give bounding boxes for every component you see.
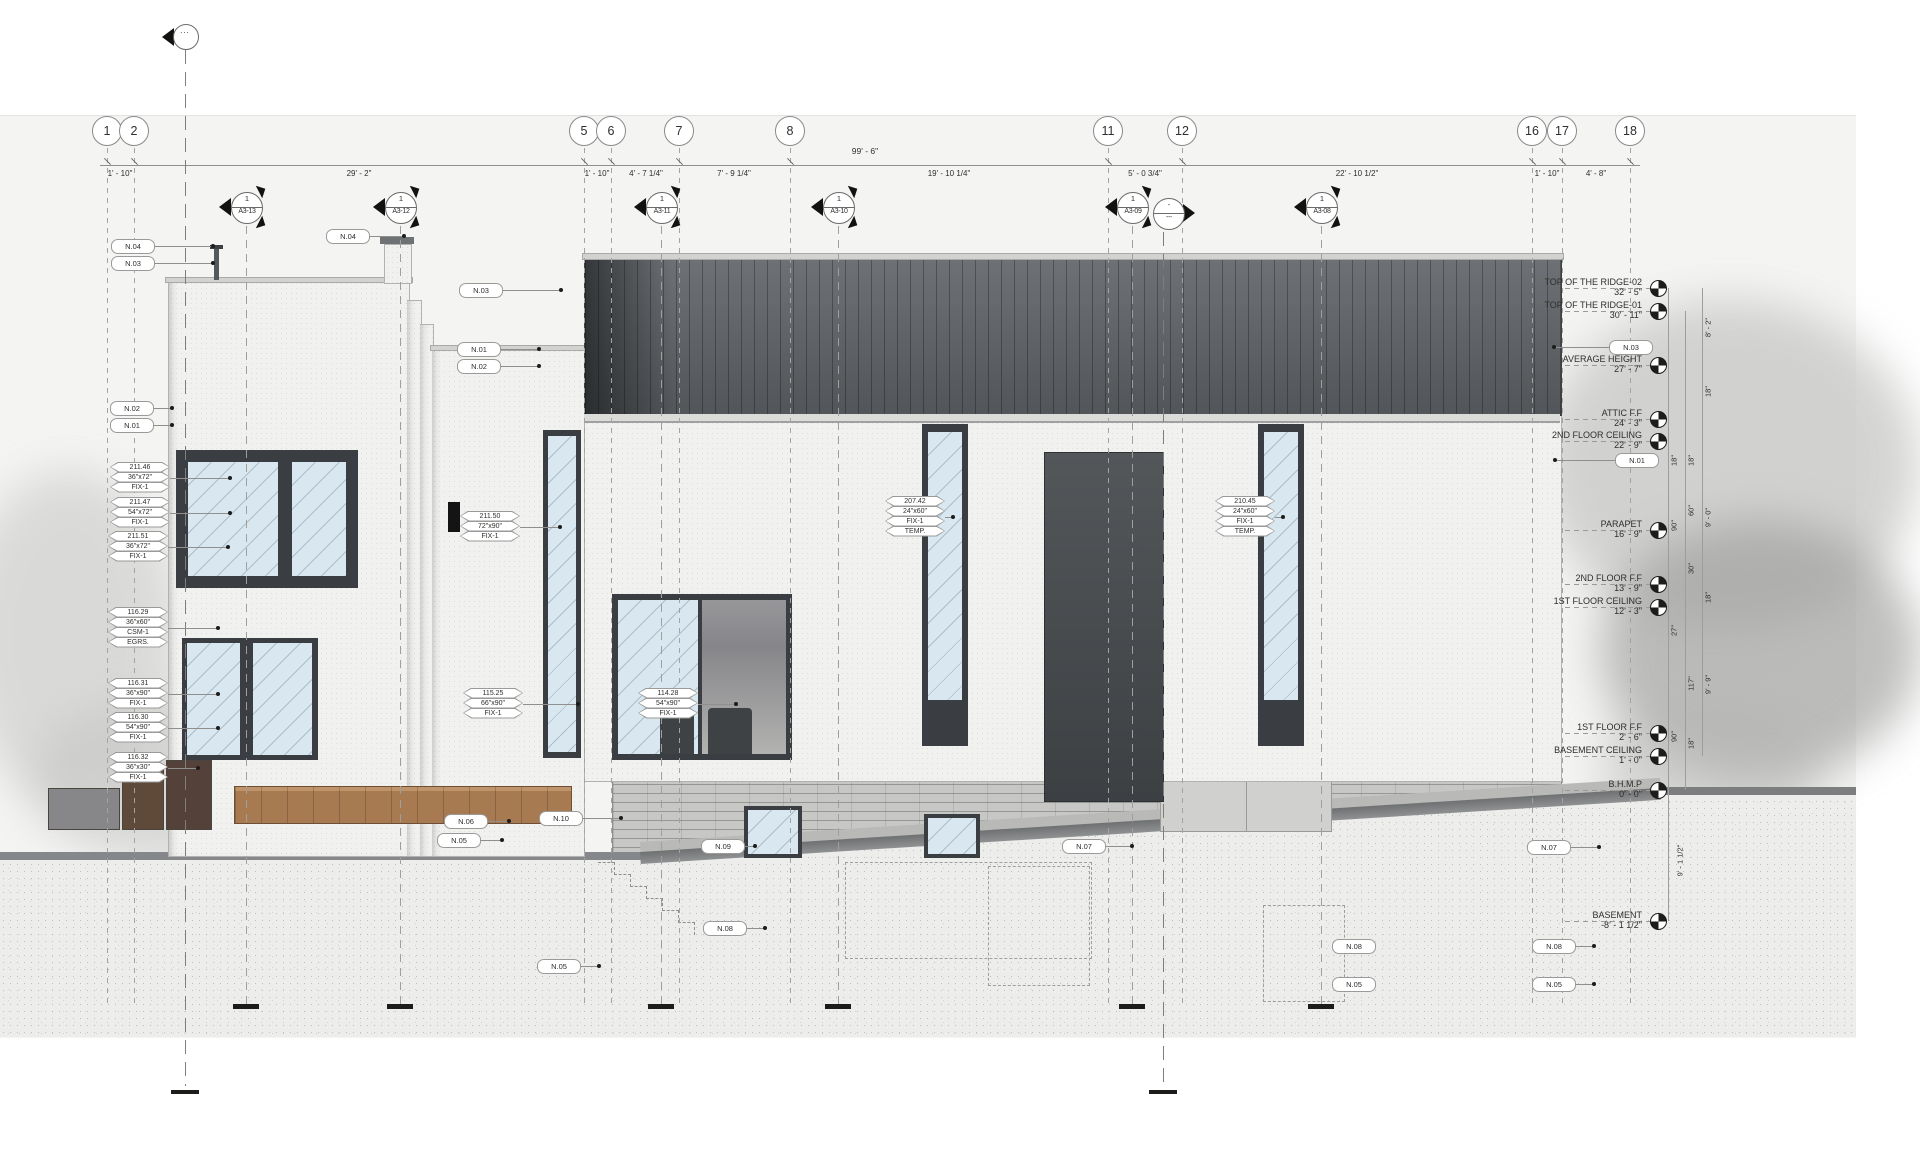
window-tag-211.50: 211.5072"x90"FIX-1 (460, 512, 520, 542)
window-tag-text: 116.31 (109, 679, 167, 688)
property-line-end (1149, 1090, 1177, 1094)
window-tag-line: 24"x60" (885, 506, 945, 517)
window-tag-text: EGRS. (109, 638, 167, 647)
keynote-leader-dot (1130, 844, 1134, 848)
keynote-leader-dot (537, 347, 541, 351)
keynote-leader-dot (402, 234, 406, 238)
section-arrow-icon (219, 198, 231, 216)
window-tag-line: 66"x90" (463, 698, 523, 709)
window-tag-text: 54"x90" (639, 699, 697, 708)
dimension-segment-label: 5' - 0 3/4" (1100, 169, 1190, 178)
level-elevation: -8' - 1 1/2" (1442, 920, 1642, 930)
window-tag-line: 211.51 (108, 531, 168, 542)
window-tag-text: FIX-1 (109, 773, 167, 782)
window-tag-text: 116.32 (109, 753, 167, 762)
grid-bubble-12: 12 (1167, 116, 1197, 146)
grid-bubble-18: 18 (1615, 116, 1645, 146)
level-label: TOP OF THE RIDGE-0232' - 5" (1442, 277, 1642, 297)
elevation-drawing-canvas: 99' - 6" 12567811121617181' - 10"29' - 2… (0, 0, 1920, 1171)
window-tag-text: FIX-1 (109, 733, 167, 742)
keynote-leader (745, 928, 765, 929)
section-sheet-number: A3-10 (824, 208, 854, 215)
section-sheet-number: A3-12 (386, 208, 416, 215)
section-marker-A3-10: 1A3-10 (823, 192, 853, 222)
keynote-leader (579, 966, 599, 967)
level-label: AVERAGE HEIGHT27' - 7" (1442, 354, 1642, 374)
vertical-dimension-label: 9' - 1 1/2" (1676, 826, 1685, 896)
section-arrow-icon (634, 198, 646, 216)
window-tag-line: FIX-1 (885, 516, 945, 527)
keynote-leader (153, 263, 213, 264)
keynote-leader (1574, 984, 1594, 985)
keynote-leader-dot (537, 364, 541, 368)
window-tag-line: 54"x72" (110, 507, 170, 518)
level-target-icon (1650, 913, 1667, 930)
grid-terminator-tick (825, 1004, 851, 1009)
grid-terminator-tick (233, 1004, 259, 1009)
window-tag-text: 211.50 (461, 512, 519, 521)
vertical-dimension-label: 90" (1670, 702, 1679, 772)
window-tag-leader (170, 513, 230, 514)
keynote-leader-dot (211, 244, 215, 248)
grid-bubble-16: 16 (1517, 116, 1547, 146)
keynote-leader (1554, 347, 1609, 348)
keynote-leader (486, 821, 509, 822)
level-target-icon (1650, 599, 1667, 616)
section-marker-A3-09: 1A3-09 (1117, 192, 1147, 222)
window-tag-line: FIX-1 (108, 551, 168, 562)
window-tag-line: FIX-1 (1215, 516, 1275, 527)
window-tag-leader-dot (576, 702, 580, 706)
keynote-tag-N.05: N.05 (437, 833, 481, 848)
dimension-segment-label: 1' - 10" (75, 169, 165, 178)
level-elevation: 1' - 0" (1442, 755, 1642, 765)
grid-line-7 (679, 148, 680, 1006)
keynote-tag-N.08: N.08 (1532, 939, 1576, 954)
window-tag-leader (520, 527, 560, 528)
window-tag-leader-dot (734, 702, 738, 706)
section-detail-number: 1 (1307, 194, 1337, 208)
window-tag-leader (168, 547, 228, 548)
window-tag-116.30: 116.3054"x90"FIX-1 (108, 713, 168, 743)
vertical-dimension-label: 18" (1704, 357, 1713, 427)
window-tag-text: FIX-1 (461, 532, 519, 541)
grid-bubble-17: 17 (1547, 116, 1577, 146)
section-marker-circle: 1A3-13 (231, 192, 263, 224)
grid-line-11 (1108, 148, 1109, 1006)
keynote-leader (501, 290, 561, 291)
window-tag-text: 211.47 (111, 498, 169, 507)
window-tag-114.28: 114.2854"x90"FIX-1 (638, 689, 698, 719)
grid-line-2 (134, 148, 135, 1006)
grid-bubble-8: 8 (775, 116, 805, 146)
keynote-tag-N.01: N.01 (110, 418, 154, 433)
window-tag-210.45: 210.4524"x60"FIX-1TEMP. (1215, 497, 1275, 537)
keynote-leader-dot (763, 926, 767, 930)
section-arrow-icon (1294, 198, 1306, 216)
level-label: B.H.M.P0' - 0" (1442, 779, 1642, 799)
level-target-icon (1650, 411, 1667, 428)
vertical-dimension-label: 18" (1687, 709, 1696, 779)
keynote-tag-N.02: N.02 (457, 359, 501, 374)
window-tag-116.31: 116.3136"x90"FIX-1 (108, 679, 168, 709)
survey-marker-label: ... (173, 26, 197, 35)
window-tag-line: 36"x90" (108, 688, 168, 699)
window-tag-207.42: 207.4224"x60"FIX-1TEMP. (885, 497, 945, 537)
grid-terminator-tick (648, 1004, 674, 1009)
level-name: 2ND FLOOR F.F (1442, 573, 1642, 583)
keynote-leader (1104, 846, 1132, 847)
window-tag-line: 36"x30" (108, 762, 168, 773)
window-tag-leader-dot (558, 525, 562, 529)
level-name: 1ST FLOOR CEILING (1442, 596, 1642, 606)
keynote-tag-N.08: N.08 (1332, 939, 1376, 954)
keynote-tag-N.03: N.03 (459, 283, 503, 298)
window-tag-line: 210.45 (1215, 496, 1275, 507)
section-marker-A3-11: 1A3-11 (646, 192, 676, 222)
window-tag-line: 72"x90" (460, 521, 520, 532)
section-marker-A3-08: 1A3-08 (1306, 192, 1336, 222)
vertical-dimension-label: 90" (1670, 491, 1679, 561)
keynote-leader (499, 349, 539, 350)
keynote-leader-dot (211, 261, 215, 265)
survey-marker: ... (173, 24, 197, 48)
section-cut-line (1321, 226, 1322, 1006)
section-cut-line (246, 226, 247, 1006)
keynote-leader (1555, 460, 1615, 461)
section-marker-circle: 1A3-11 (646, 192, 678, 224)
keynote-leader-dot (170, 423, 174, 427)
window-tag-text: FIX-1 (111, 518, 169, 527)
window-tag-211.51: 211.5136"x72"FIX-1 (108, 532, 168, 562)
section-arrow-icon (811, 198, 823, 216)
keynote-leader-dot (1552, 345, 1556, 349)
dimension-segment-label: 29' - 2" (314, 169, 404, 178)
window-tag-115.25: 115.2566"x90"FIX-1 (463, 689, 523, 719)
level-target-icon (1650, 303, 1667, 320)
window-tag-leader (698, 704, 736, 705)
section-marker-circle: 1A3-08 (1306, 192, 1338, 224)
dimension-segment-label: 22' - 10 1/2" (1312, 169, 1402, 178)
keynote-leader-dot (753, 844, 757, 848)
level-target-icon (1650, 576, 1667, 593)
window-tag-text: 54"x90" (109, 723, 167, 732)
keynote-leader-dot (500, 838, 504, 842)
window-tag-text: 211.46 (111, 463, 169, 472)
section-detail-number: 1 (824, 194, 854, 208)
keynote-tag-N.03: N.03 (1609, 340, 1653, 355)
level-elevation: 22' - 9" (1442, 440, 1642, 450)
window-tag-text: FIX-1 (1216, 517, 1274, 526)
section-sheet-number: A3-09 (1118, 208, 1148, 215)
window-tag-text: FIX-1 (109, 699, 167, 708)
window-tag-text: 211.51 (109, 532, 167, 541)
level-target-icon (1650, 522, 1667, 539)
vertical-dimension-label: 27" (1670, 596, 1679, 666)
aux-section-marker: ---- (1153, 198, 1183, 228)
window-tag-leader-dot (216, 626, 220, 630)
dimension-segment-label: 4' - 7 1/4" (601, 169, 691, 178)
level-target-icon (1650, 280, 1667, 297)
level-elevation: 2' - 6" (1442, 732, 1642, 742)
property-line (1163, 232, 1164, 1086)
window-tag-leader-dot (196, 766, 200, 770)
window-tag-text: 115.25 (464, 689, 522, 698)
window-tag-line: 211.47 (110, 497, 170, 508)
keynote-tag-N.05: N.05 (1532, 977, 1576, 992)
level-name: TOP OF THE RIDGE-01 (1442, 300, 1642, 310)
keynote-tag-N.02: N.02 (110, 401, 154, 416)
window-tag-line: 211.50 (460, 511, 520, 522)
vertical-dimension-label: 18" (1670, 426, 1679, 496)
level-elevation: 16' - 9" (1442, 529, 1642, 539)
window-tag-line: 116.31 (108, 678, 168, 689)
keynote-tag-N.06: N.06 (444, 814, 488, 829)
window-tag-line: FIX-1 (460, 531, 520, 542)
window-tag-text: FIX-1 (886, 517, 944, 526)
window-tag-leader-dot (216, 692, 220, 696)
window-tag-line: TEMP. (885, 526, 945, 537)
grid-bubble-5: 5 (569, 116, 599, 146)
section-marker-A3-12: 1A3-12 (385, 192, 415, 222)
window-tag-text: FIX-1 (464, 709, 522, 718)
window-tag-line: 116.30 (108, 712, 168, 723)
level-label: 1ST FLOOR CEILING12' - 3" (1442, 596, 1642, 616)
level-target-icon (1650, 433, 1667, 450)
level-label: BASEMENT-8' - 1 1/2" (1442, 910, 1642, 930)
grid-bubble-11: 11 (1093, 116, 1123, 146)
grid-bubble-7: 7 (664, 116, 694, 146)
keynote-tag-N.07: N.07 (1062, 839, 1106, 854)
keynote-leader-dot (1597, 845, 1601, 849)
window-tag-leader (168, 768, 198, 769)
level-label: 2ND FLOOR CEILING22' - 9" (1442, 430, 1642, 450)
property-line (185, 50, 186, 1086)
level-name: BASEMENT CEILING (1442, 745, 1642, 755)
section-marker-circle: 1A3-10 (823, 192, 855, 224)
keynote-leader-dot (1592, 944, 1596, 948)
window-tag-leader (168, 728, 218, 729)
keynote-leader (581, 818, 621, 819)
window-tag-116.29: 116.2936"x60"CSM-1EGRS. (108, 608, 168, 648)
grid-line-8 (790, 148, 791, 1006)
window-tag-leader (168, 694, 218, 695)
section-cut-line (400, 226, 401, 1006)
window-tag-text: FIX-1 (639, 709, 697, 718)
level-name: TOP OF THE RIDGE-02 (1442, 277, 1642, 287)
keynote-leader-dot (619, 816, 623, 820)
window-tag-text: 36"x90" (109, 689, 167, 698)
window-tag-line: FIX-1 (638, 708, 698, 719)
window-tag-line: EGRS. (108, 637, 168, 648)
level-label: PARAPET16' - 9" (1442, 519, 1642, 539)
grid-line-6 (611, 148, 612, 1006)
window-tag-line: 54"x90" (638, 698, 698, 709)
level-target-icon (1650, 748, 1667, 765)
keynote-leader (153, 246, 213, 247)
window-tag-211.46: 211.4636"x72"FIX-1 (110, 463, 170, 493)
window-tag-text: 24"x60" (1216, 507, 1274, 516)
window-tag-line: FIX-1 (108, 772, 168, 783)
section-marker-A3-13: 1A3-13 (231, 192, 261, 222)
level-name: 1ST FLOOR F.F (1442, 722, 1642, 732)
window-tag-leader-dot (951, 515, 955, 519)
keynote-tag-N.04: N.04 (111, 239, 155, 254)
section-cut-line (661, 226, 662, 1006)
window-tag-line: FIX-1 (108, 698, 168, 709)
window-tag-line: FIX-1 (463, 708, 523, 719)
section-marker-circle: 1A3-12 (385, 192, 417, 224)
window-tag-line: 114.28 (638, 688, 698, 699)
window-tag-line: 207.42 (885, 496, 945, 507)
level-label: TOP OF THE RIDGE-0130' - 11" (1442, 300, 1642, 320)
vertical-dimension-label: 30" (1687, 534, 1696, 604)
keynote-tag-N.03: N.03 (111, 256, 155, 271)
window-tag-text: 36"x72" (111, 473, 169, 482)
keynote-leader (1574, 946, 1594, 947)
window-tag-text: 116.29 (109, 608, 167, 617)
grid-bubble-2: 2 (119, 116, 149, 146)
dimension-segment-label: 4' - 8" (1551, 169, 1641, 178)
level-label: 1ST FLOOR F.F2' - 6" (1442, 722, 1642, 742)
grid-terminator-tick (1308, 1004, 1334, 1009)
dimension-segment-label: 7' - 9 1/4" (689, 169, 779, 178)
window-tag-leader-dot (228, 476, 232, 480)
level-elevation: 24' - 3" (1442, 418, 1642, 428)
window-tag-text: 36"x72" (109, 542, 167, 551)
section-sheet-number: A3-08 (1307, 208, 1337, 215)
window-tag-text: 24"x60" (886, 507, 944, 516)
level-elevation: 27' - 7" (1442, 364, 1642, 374)
level-name: B.H.M.P (1442, 779, 1642, 789)
aux-marker-bottom: --- (1154, 214, 1184, 221)
window-tag-text: CSM-1 (109, 628, 167, 637)
window-tag-line: FIX-1 (110, 517, 170, 528)
grid-line-1 (107, 148, 108, 1006)
level-label: BASEMENT CEILING1' - 0" (1442, 745, 1642, 765)
window-tag-leader (170, 478, 230, 479)
section-arrow-icon (373, 198, 385, 216)
window-tag-leader-dot (226, 545, 230, 549)
property-line-end (171, 1090, 199, 1094)
section-detail-number: 1 (1118, 194, 1148, 208)
section-marker-circle: 1A3-09 (1117, 192, 1149, 224)
aux-marker-circle: ---- (1153, 198, 1185, 230)
dimension-segment-label: 19' - 10 1/4" (904, 169, 994, 178)
window-tag-text: 116.30 (109, 713, 167, 722)
window-tag-116.32: 116.3236"x30"FIX-1 (108, 753, 168, 783)
window-tag-line: 211.46 (110, 462, 170, 473)
keynote-tag-N.05: N.05 (537, 959, 581, 974)
grid-line-12 (1182, 148, 1183, 1006)
window-tag-line: 36"x72" (110, 472, 170, 483)
window-tag-line: 115.25 (463, 688, 523, 699)
window-tag-text: TEMP. (886, 527, 944, 536)
window-tag-line: FIX-1 (108, 732, 168, 743)
window-tag-line: FIX-1 (110, 482, 170, 493)
window-tag-text: 54"x72" (111, 508, 169, 517)
keynote-leader (499, 366, 539, 367)
window-tag-leader-dot (216, 726, 220, 730)
level-elevation: 12' - 3" (1442, 606, 1642, 616)
section-cut-line (1132, 226, 1133, 1006)
window-tag-text: FIX-1 (109, 552, 167, 561)
section-sheet-number: A3-13 (232, 208, 262, 215)
vertical-dimension-label: 9' - 9" (1704, 650, 1713, 720)
grid-terminator-tick (1119, 1004, 1145, 1009)
level-target-icon (1650, 782, 1667, 799)
level-elevation: 32' - 5" (1442, 287, 1642, 297)
section-detail-number: 1 (232, 194, 262, 208)
grid-bubble-1: 1 (92, 116, 122, 146)
level-name: 2ND FLOOR CEILING (1442, 430, 1642, 440)
window-tag-line: 116.29 (108, 607, 168, 618)
window-tag-text: 114.28 (639, 689, 697, 698)
keynote-tag-N.08: N.08 (703, 921, 747, 936)
window-tag-line: 54"x90" (108, 722, 168, 733)
keynote-leader (1569, 847, 1599, 848)
window-tag-leader (168, 628, 218, 629)
window-tag-line: CSM-1 (108, 627, 168, 638)
level-name: AVERAGE HEIGHT (1442, 354, 1642, 364)
section-sheet-number: A3-11 (647, 208, 677, 215)
window-tag-leader (523, 704, 578, 705)
keynote-leader-dot (1592, 982, 1596, 986)
level-elevation: 0' - 0" (1442, 789, 1642, 799)
level-target-icon (1650, 725, 1667, 742)
level-label: ATTIC F.F24' - 3" (1442, 408, 1642, 428)
level-target-icon (1650, 357, 1667, 374)
keynote-leader (479, 840, 502, 841)
keynote-tag-N.04: N.04 (326, 229, 370, 244)
level-name: PARAPET (1442, 519, 1642, 529)
keynote-tag-N.07: N.07 (1527, 840, 1571, 855)
window-tag-text: 207.42 (886, 497, 944, 506)
window-tag-text: 72"x90" (461, 522, 519, 531)
window-tag-text: TEMP. (1216, 527, 1274, 536)
window-tag-text: 210.45 (1216, 497, 1274, 506)
window-tag-text: 36"x60" (109, 618, 167, 627)
window-tag-text: 66"x90" (464, 699, 522, 708)
window-tag-leader-dot (228, 511, 232, 515)
keynote-leader-dot (507, 819, 511, 823)
level-name: ATTIC F.F (1442, 408, 1642, 418)
keynote-leader-dot (170, 406, 174, 410)
keynote-tag-N.01: N.01 (1615, 453, 1659, 468)
grid-line-5 (584, 148, 585, 1006)
window-tag-leader-dot (1281, 515, 1285, 519)
keynote-tag-N.09: N.09 (701, 839, 745, 854)
keynote-leader (368, 236, 404, 237)
level-label: 2ND FLOOR F.F13' - 9" (1442, 573, 1642, 593)
keynote-leader (152, 408, 172, 409)
window-tag-line: TEMP. (1215, 526, 1275, 537)
keynote-leader-dot (1553, 458, 1557, 462)
keynote-tag-N.01: N.01 (457, 342, 501, 357)
section-cut-line (838, 226, 839, 1006)
window-tag-line: 36"x60" (108, 617, 168, 628)
window-tag-line: 24"x60" (1215, 506, 1275, 517)
window-tag-line: 36"x72" (108, 541, 168, 552)
vertical-dimension-label: 8' - 2" (1704, 293, 1713, 363)
level-name: BASEMENT (1442, 910, 1642, 920)
section-detail-number: 1 (647, 194, 677, 208)
keynote-leader-dot (597, 964, 601, 968)
window-tag-211.47: 211.4754"x72"FIX-1 (110, 498, 170, 528)
level-elevation: 30' - 11" (1442, 310, 1642, 320)
vertical-dimension-label: 9' - 0" (1704, 483, 1713, 553)
grid-terminator-tick (387, 1004, 413, 1009)
